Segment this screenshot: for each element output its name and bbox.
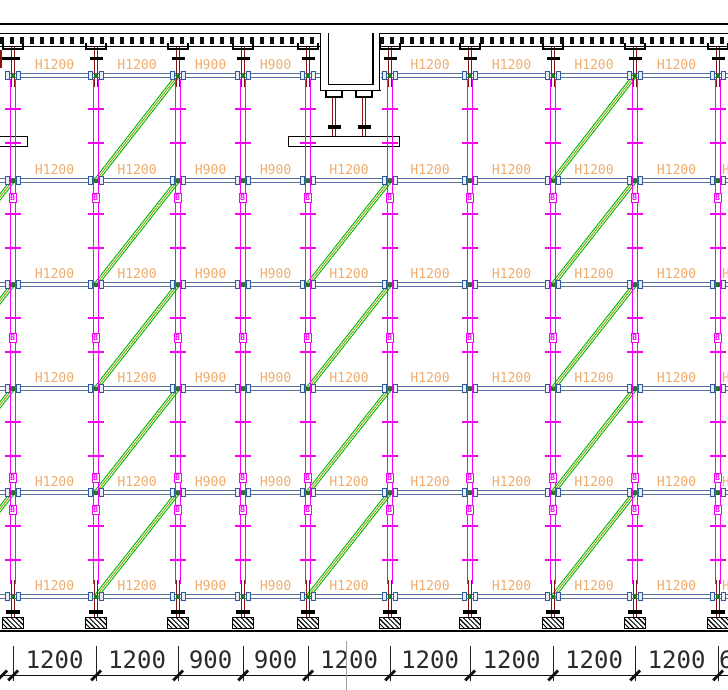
ledger-node bbox=[16, 71, 21, 80]
ledger-node bbox=[382, 592, 387, 601]
post-sleeve-label: B bbox=[466, 505, 474, 515]
bay-height-label: H1200 bbox=[566, 59, 622, 72]
u-head-plate bbox=[105, 43, 107, 48]
dim-value: 600 bbox=[719, 648, 728, 672]
jack-collar bbox=[358, 125, 371, 129]
ledger-node-dot bbox=[468, 283, 472, 287]
ledger-node-dot bbox=[241, 595, 245, 599]
ledger-node bbox=[393, 176, 398, 185]
ledger-node bbox=[710, 488, 715, 497]
ledger-node bbox=[556, 488, 561, 497]
post-coupler-tick bbox=[235, 108, 251, 110]
ledger-node bbox=[473, 176, 478, 185]
post-coupler-tick bbox=[545, 559, 561, 561]
bay-height-label: H1200 bbox=[566, 580, 622, 593]
post-sleeve-label: B bbox=[631, 473, 639, 483]
post-sleeve-label: B bbox=[631, 505, 639, 515]
post-coupler-tick bbox=[88, 525, 104, 527]
bay-height-label: H600 bbox=[722, 164, 728, 177]
post-sleeve-label: B bbox=[239, 505, 247, 515]
ledger-node bbox=[382, 71, 387, 80]
post-coupler-tick bbox=[88, 317, 104, 319]
u-head-plate bbox=[297, 43, 299, 48]
ledger-node bbox=[556, 176, 561, 185]
jack-collar bbox=[464, 57, 477, 61]
jack-collar bbox=[547, 57, 560, 61]
jack-collar bbox=[328, 125, 341, 129]
bay-height-label: H900 bbox=[248, 268, 304, 281]
u-head-plate bbox=[624, 48, 646, 50]
post-sleeve-label: B bbox=[239, 193, 247, 203]
dim-value: 1200 bbox=[390, 648, 470, 672]
ledger-node bbox=[235, 488, 240, 497]
post-sleeve-label: B bbox=[714, 473, 722, 483]
bay-height-label: H1200 bbox=[484, 580, 540, 593]
ledger-node-dot bbox=[388, 74, 392, 78]
post-coupler-tick bbox=[545, 247, 561, 249]
u-head-plate bbox=[371, 91, 373, 96]
post-sleeve-label: B bbox=[549, 193, 557, 203]
jack-collar bbox=[383, 610, 397, 614]
post-sleeve-label: B bbox=[714, 193, 722, 203]
ledger-node-dot bbox=[716, 179, 720, 183]
jack-screw-top bbox=[716, 47, 720, 87]
ledger-node-dot bbox=[551, 74, 555, 78]
post-coupler-tick bbox=[710, 317, 726, 319]
beam-jack-screw bbox=[362, 98, 366, 136]
beam-concrete-bottom bbox=[328, 84, 374, 85]
ledger-node-dot bbox=[11, 283, 15, 287]
post-coupler-tick bbox=[382, 213, 398, 215]
jack-screw-top bbox=[11, 47, 15, 87]
ledger-node-dot bbox=[388, 179, 392, 183]
ledger-node bbox=[99, 384, 104, 393]
ledger-node bbox=[311, 384, 316, 393]
bay-height-label: H1200 bbox=[402, 372, 458, 385]
u-head-plate bbox=[297, 48, 319, 50]
post-sleeve-label: B bbox=[9, 333, 17, 343]
u-head-plate bbox=[85, 48, 107, 50]
ledger-node-dot bbox=[306, 595, 310, 599]
ledger-node-dot bbox=[468, 387, 472, 391]
ledger-node bbox=[710, 176, 715, 185]
post-coupler-tick bbox=[710, 247, 726, 249]
u-head-plate bbox=[22, 43, 24, 48]
post-sleeve-label: B bbox=[9, 473, 17, 483]
ledger-node bbox=[16, 384, 21, 393]
post-coupler-tick bbox=[88, 142, 104, 144]
ledger-node-dot bbox=[633, 283, 637, 287]
ledger-node bbox=[311, 176, 316, 185]
ledger-node bbox=[300, 592, 305, 601]
ledger-node-dot bbox=[468, 491, 472, 495]
ledger-row bbox=[0, 594, 728, 599]
post-coupler-tick bbox=[170, 559, 186, 561]
post-coupler-tick bbox=[170, 317, 186, 319]
ledger-row bbox=[0, 178, 728, 183]
jack-collar bbox=[301, 610, 315, 614]
bay-height-label: H900 bbox=[183, 268, 239, 281]
bay-height-label: H1200 bbox=[402, 268, 458, 281]
ledger-row bbox=[10, 73, 320, 78]
ledger-node-dot bbox=[94, 491, 98, 495]
jack-screw-top bbox=[468, 47, 472, 87]
ledger-node bbox=[300, 280, 305, 289]
ledger-node bbox=[181, 280, 186, 289]
jack-collar bbox=[463, 610, 477, 614]
ledger-node-dot bbox=[468, 595, 472, 599]
jack-collar bbox=[171, 610, 185, 614]
bay-height-label: H600 bbox=[722, 580, 728, 593]
post-coupler-tick bbox=[710, 455, 726, 457]
bay-height-label: H1200 bbox=[649, 164, 705, 177]
u-head-plate bbox=[167, 48, 189, 50]
ledger-node bbox=[300, 384, 305, 393]
ledger-node-dot bbox=[716, 387, 720, 391]
ledger-node-dot bbox=[633, 491, 637, 495]
u-head-plate bbox=[167, 43, 169, 48]
post-coupler-tick bbox=[170, 247, 186, 249]
dim-value: 1200 bbox=[637, 648, 717, 672]
bay-height-label: H900 bbox=[183, 580, 239, 593]
jack-collar bbox=[546, 610, 560, 614]
ledger-node-dot bbox=[388, 387, 392, 391]
bay-height-label: H1200 bbox=[649, 59, 705, 72]
post-coupler-tick bbox=[300, 247, 316, 249]
slab-top-line bbox=[0, 23, 728, 25]
post-coupler-tick bbox=[300, 108, 316, 110]
dim-value: 1200 bbox=[472, 648, 552, 672]
post-coupler-tick bbox=[382, 108, 398, 110]
ledger-node bbox=[170, 488, 175, 497]
ledger-node-dot bbox=[11, 74, 15, 78]
post-coupler-tick bbox=[382, 247, 398, 249]
post-coupler-tick bbox=[462, 142, 478, 144]
base-plate bbox=[379, 617, 401, 629]
scaffold-elevation-drawing: BBBBBBBBBBBBBBBBBBBBBBBBBBBBBBBBBBBBBBBB… bbox=[0, 0, 728, 690]
jack-screw-top bbox=[388, 47, 392, 87]
bay-height-label: H1200 bbox=[649, 476, 705, 489]
jack-screw-top bbox=[176, 47, 180, 87]
ledger-node-dot bbox=[11, 387, 15, 391]
ledger-node bbox=[235, 592, 240, 601]
bay-height-label: H1200 bbox=[109, 268, 165, 281]
post-sleeve-label: B bbox=[304, 333, 312, 343]
ledger-row bbox=[0, 282, 728, 287]
jack-screw-top bbox=[0, 50, 2, 68]
post-coupler-tick bbox=[710, 421, 726, 423]
jack-collar bbox=[628, 610, 642, 614]
post-coupler-tick bbox=[627, 525, 643, 527]
ledger-node bbox=[473, 488, 478, 497]
ledger-node-dot bbox=[306, 74, 310, 78]
bay-height-label: H900 bbox=[183, 476, 239, 489]
ledger-node-dot bbox=[468, 179, 472, 183]
ledger-node bbox=[545, 592, 550, 601]
ledger-node bbox=[627, 176, 632, 185]
jack-collar bbox=[711, 610, 725, 614]
ledger-node bbox=[5, 488, 10, 497]
bay-height-label: H1200 bbox=[484, 268, 540, 281]
slab-soffit-band bbox=[0, 33, 320, 47]
base-plate bbox=[707, 617, 728, 629]
ledger-node-dot bbox=[716, 595, 720, 599]
bay-height-label: H900 bbox=[248, 164, 304, 177]
bay-height-label: H1200 bbox=[484, 164, 540, 177]
bay-height-label: H1200 bbox=[27, 59, 83, 72]
u-head-plate bbox=[707, 43, 709, 48]
u-head-plate bbox=[644, 43, 646, 48]
post-coupler-tick bbox=[545, 317, 561, 319]
bay-height-label: H900 bbox=[248, 372, 304, 385]
ledger-node bbox=[556, 280, 561, 289]
ledger-node bbox=[462, 280, 467, 289]
post-sleeve-label: B bbox=[304, 473, 312, 483]
post-coupler-tick bbox=[300, 142, 316, 144]
slab-soffit-band bbox=[380, 33, 728, 47]
post-coupler-tick bbox=[5, 108, 21, 110]
u-head-plate bbox=[459, 43, 461, 48]
post-coupler-tick bbox=[235, 213, 251, 215]
post-coupler-tick bbox=[545, 213, 561, 215]
bay-height-label: H900 bbox=[248, 476, 304, 489]
ledger-node-dot bbox=[388, 283, 392, 287]
jack-collar bbox=[712, 57, 725, 61]
ledger-node bbox=[545, 280, 550, 289]
jack-screw-top bbox=[241, 47, 245, 87]
ledger-node bbox=[88, 280, 93, 289]
dim-value: 900 bbox=[236, 648, 316, 672]
ledger-node-dot bbox=[176, 491, 180, 495]
ledger-node-dot bbox=[241, 491, 245, 495]
dim-value: 1200 bbox=[15, 648, 95, 672]
ledger-node bbox=[246, 280, 251, 289]
ledger-node bbox=[16, 280, 21, 289]
post-sleeve-label: B bbox=[9, 505, 17, 515]
bay-height-label: H1200 bbox=[566, 268, 622, 281]
jack-screw-top bbox=[633, 47, 637, 87]
ledger-node-dot bbox=[11, 179, 15, 183]
ledger-node bbox=[246, 592, 251, 601]
post-coupler-tick bbox=[170, 525, 186, 527]
u-head-plate bbox=[252, 43, 254, 48]
ledger-node bbox=[556, 71, 561, 80]
post-coupler-tick bbox=[170, 351, 186, 353]
ledger-node bbox=[462, 176, 467, 185]
ledger-node bbox=[393, 488, 398, 497]
post-coupler-tick bbox=[382, 525, 398, 527]
ledger-node-dot bbox=[388, 595, 392, 599]
ledger-node bbox=[246, 71, 251, 80]
base-plate bbox=[542, 617, 564, 629]
ledger-node bbox=[181, 176, 186, 185]
ledger-node bbox=[5, 176, 10, 185]
post-coupler-tick bbox=[627, 559, 643, 561]
bay-height-label: H1200 bbox=[109, 164, 165, 177]
ledger-node-dot bbox=[468, 74, 472, 78]
post-sleeve-label: B bbox=[174, 193, 182, 203]
post-sleeve-label: B bbox=[239, 333, 247, 343]
u-head-plate bbox=[542, 43, 544, 48]
jack-collar bbox=[7, 57, 20, 61]
ledger-node-dot bbox=[633, 387, 637, 391]
post-coupler-tick bbox=[170, 421, 186, 423]
post-coupler-tick bbox=[462, 108, 478, 110]
bay-height-label: H1200 bbox=[109, 372, 165, 385]
u-head-plate bbox=[85, 43, 87, 48]
bay-height-label: H1200 bbox=[649, 268, 705, 281]
post-coupler-tick bbox=[462, 213, 478, 215]
jack-collar bbox=[236, 610, 250, 614]
ledger-node bbox=[99, 71, 104, 80]
bay-height-label: H1200 bbox=[402, 164, 458, 177]
ledger-node bbox=[246, 176, 251, 185]
bay-height-label: H1200 bbox=[484, 476, 540, 489]
ledger-node-dot bbox=[94, 595, 98, 599]
jack-collar bbox=[89, 610, 103, 614]
post-coupler-tick bbox=[170, 455, 186, 457]
bay-height-label: H1200 bbox=[402, 476, 458, 489]
ledger-node bbox=[710, 280, 715, 289]
post-coupler-tick bbox=[627, 317, 643, 319]
dim-value: 1200 bbox=[309, 648, 389, 672]
ledger-node-dot bbox=[94, 387, 98, 391]
post-coupler-tick bbox=[545, 142, 561, 144]
ledger-node-dot bbox=[94, 74, 98, 78]
ledger-node bbox=[382, 384, 387, 393]
ledger-node bbox=[382, 488, 387, 497]
post-coupler-tick bbox=[627, 108, 643, 110]
ledger-node bbox=[181, 488, 186, 497]
ledger-node bbox=[311, 71, 316, 80]
post-coupler-tick bbox=[382, 455, 398, 457]
post-sleeve-label: B bbox=[549, 505, 557, 515]
post-coupler-tick bbox=[462, 421, 478, 423]
u-head-plate bbox=[325, 96, 343, 98]
base-plate bbox=[232, 617, 254, 629]
post-coupler-tick bbox=[235, 351, 251, 353]
jack-screw-top bbox=[551, 47, 555, 87]
bay-height-label: H1200 bbox=[321, 164, 377, 177]
ledger-node bbox=[473, 71, 478, 80]
bay-height-label: H1200 bbox=[27, 268, 83, 281]
post-coupler-tick bbox=[235, 247, 251, 249]
ledger-node-dot bbox=[716, 491, 720, 495]
post-coupler-tick bbox=[300, 213, 316, 215]
ledger-node bbox=[462, 488, 467, 497]
post-coupler-tick bbox=[300, 317, 316, 319]
ledger-node-dot bbox=[94, 179, 98, 183]
ledger-node bbox=[5, 592, 10, 601]
post-coupler-tick bbox=[462, 455, 478, 457]
post-sleeve-label: B bbox=[174, 505, 182, 515]
bay-height-label: H900 bbox=[183, 372, 239, 385]
post-coupler-tick bbox=[235, 455, 251, 457]
bay-height-label: H600 bbox=[722, 372, 728, 385]
ledger-node bbox=[181, 592, 186, 601]
base-plate bbox=[85, 617, 107, 629]
bay-height-label: H900 bbox=[183, 59, 239, 72]
post-coupler-tick bbox=[382, 317, 398, 319]
ledger-node bbox=[311, 592, 316, 601]
post-coupler-tick bbox=[382, 351, 398, 353]
post-sleeve-label: B bbox=[9, 193, 17, 203]
bay-height-label: H1200 bbox=[321, 580, 377, 593]
u-head-plate bbox=[325, 91, 327, 96]
base-plate bbox=[624, 617, 646, 629]
joist-squares bbox=[0, 37, 320, 45]
post-sleeve-label: B bbox=[239, 473, 247, 483]
post-coupler-tick bbox=[88, 108, 104, 110]
ledger-node bbox=[5, 71, 10, 80]
post-coupler-tick bbox=[300, 421, 316, 423]
post-sleeve-label: B bbox=[631, 333, 639, 343]
ledger-node bbox=[88, 384, 93, 393]
jack-collar bbox=[90, 57, 103, 61]
bay-height-label: H1200 bbox=[109, 59, 165, 72]
post-coupler-tick bbox=[170, 108, 186, 110]
post-coupler-tick bbox=[5, 421, 21, 423]
ledger-node bbox=[638, 280, 643, 289]
post-coupler-tick bbox=[170, 213, 186, 215]
ledger-node bbox=[99, 280, 104, 289]
post-coupler-tick bbox=[462, 247, 478, 249]
ledger-node bbox=[473, 280, 478, 289]
post-coupler-tick bbox=[462, 525, 478, 527]
post-coupler-tick bbox=[710, 525, 726, 527]
ledger-node-dot bbox=[716, 74, 720, 78]
post-sleeve-label: B bbox=[92, 333, 100, 343]
post-coupler-tick bbox=[710, 142, 726, 144]
ledger-node bbox=[462, 592, 467, 601]
post-coupler-tick bbox=[627, 351, 643, 353]
ledger-node bbox=[556, 592, 561, 601]
base-plate bbox=[297, 617, 319, 629]
post-coupler-tick bbox=[462, 317, 478, 319]
u-head-plate bbox=[187, 43, 189, 48]
ledger-node bbox=[88, 176, 93, 185]
ledger-node-dot bbox=[551, 283, 555, 287]
u-head-plate bbox=[355, 96, 373, 98]
post-coupler-tick bbox=[627, 213, 643, 215]
ledger-node bbox=[16, 176, 21, 185]
bay-height-label: H1200 bbox=[649, 372, 705, 385]
ledger-node-dot bbox=[633, 595, 637, 599]
post-coupler-tick bbox=[462, 559, 478, 561]
post-coupler-tick bbox=[710, 108, 726, 110]
ledger-node-dot bbox=[241, 387, 245, 391]
post-coupler-tick bbox=[545, 525, 561, 527]
ledger-node-dot bbox=[11, 491, 15, 495]
joist-squares bbox=[380, 37, 728, 45]
jack-collar bbox=[629, 57, 642, 61]
u-head-plate bbox=[399, 43, 401, 48]
post-coupler-tick bbox=[300, 525, 316, 527]
ledger-node bbox=[627, 488, 632, 497]
post-coupler-tick bbox=[88, 455, 104, 457]
jack-collar bbox=[6, 610, 20, 614]
post-coupler-tick bbox=[5, 142, 21, 144]
u-head-plate bbox=[355, 91, 357, 96]
ledger-node bbox=[545, 488, 550, 497]
u-head-plate bbox=[341, 91, 343, 96]
post-coupler-tick bbox=[5, 559, 21, 561]
bay-height-label: H1200 bbox=[402, 580, 458, 593]
dimension-line bbox=[0, 675, 728, 676]
beam-formwork-right-wall bbox=[379, 33, 381, 91]
bay-height-label: H1200 bbox=[484, 59, 540, 72]
bay-height-label: H1200 bbox=[321, 372, 377, 385]
